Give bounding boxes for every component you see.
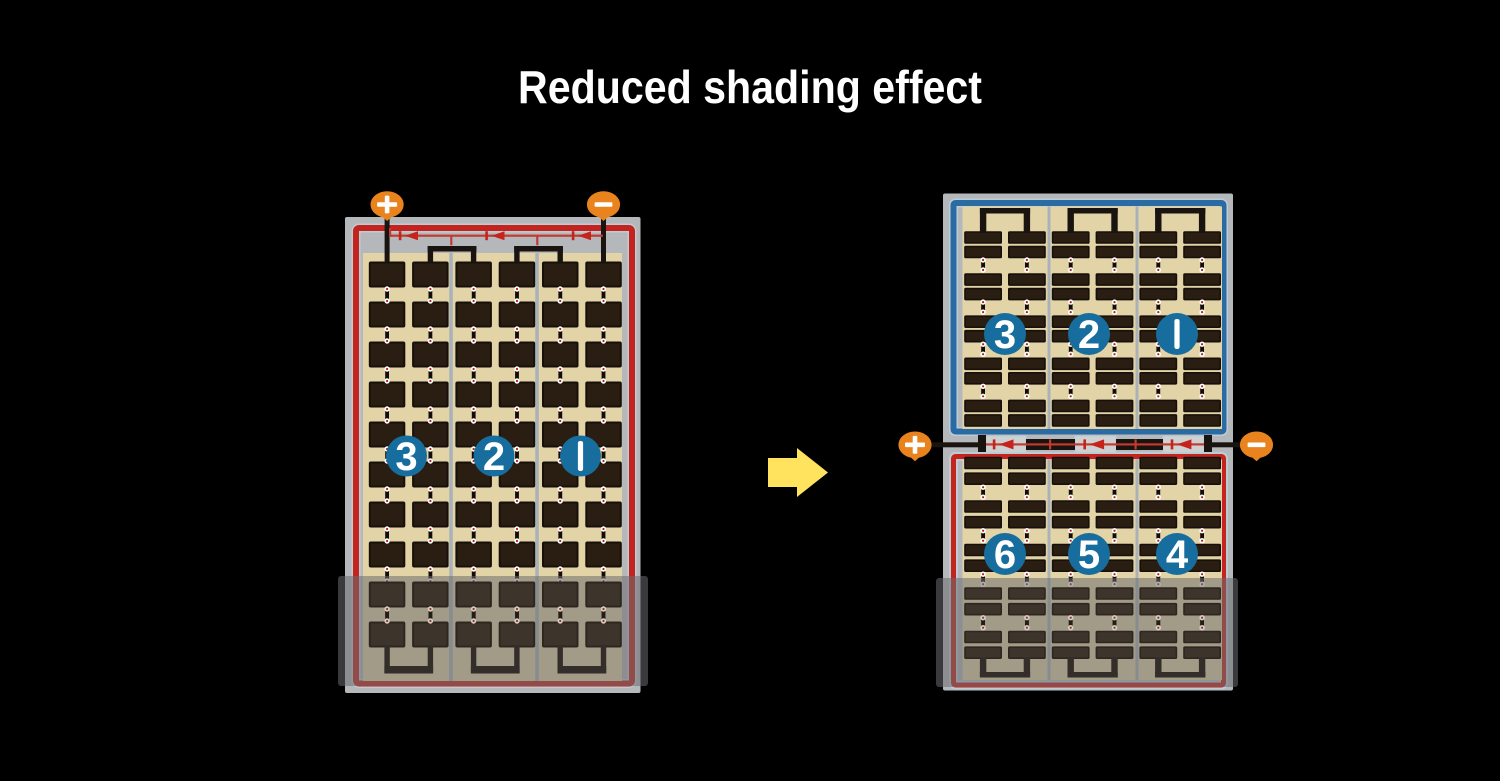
svg-text:3: 3 [395,435,417,479]
svg-text:3: 3 [994,313,1016,357]
svg-text:6: 6 [994,533,1016,577]
svg-text:2: 2 [1078,313,1100,357]
svg-text:2: 2 [483,435,505,479]
svg-text:Reduced shading effect: Reduced shading effect [518,61,982,113]
svg-text:5: 5 [1078,533,1100,577]
svg-text:4: 4 [1166,533,1189,577]
